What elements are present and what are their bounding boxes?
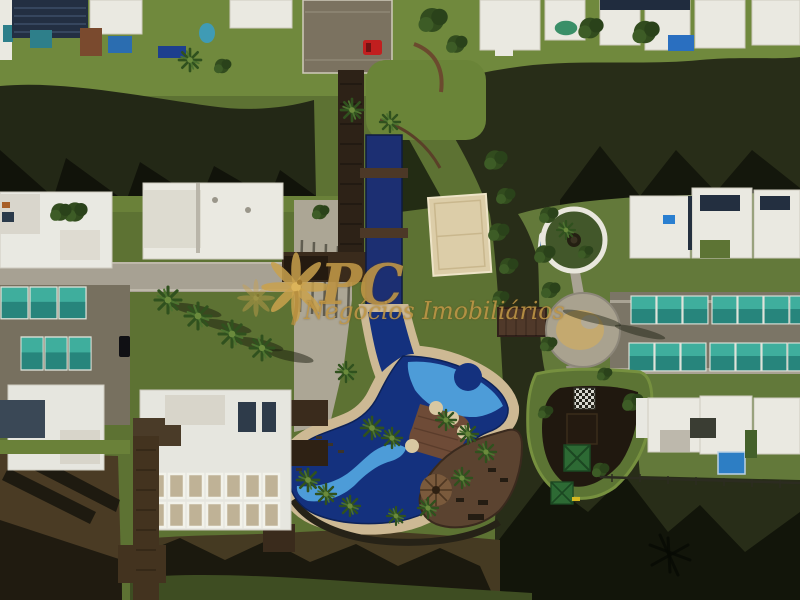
blue-pool <box>668 35 694 51</box>
play-cart <box>572 497 580 501</box>
mid-right-buildings <box>630 188 800 258</box>
lap-pool <box>360 135 408 312</box>
aerial-photo: PC Negócios Imobiliários <box>0 0 800 600</box>
house-pool-4 <box>199 23 215 43</box>
bottom-canal-left <box>0 452 122 600</box>
black-car <box>119 336 130 357</box>
canal-bridge-right <box>498 308 546 336</box>
circular-plaza <box>546 293 620 367</box>
beach-volleyball-court <box>428 194 491 276</box>
wood-patio <box>80 28 102 56</box>
house-pool-1 <box>30 30 52 48</box>
house-pool-2 <box>108 36 132 53</box>
green-pool <box>554 20 578 36</box>
red-car <box>363 40 382 55</box>
play-tower <box>567 414 597 444</box>
rooftop-pool <box>663 215 675 224</box>
plunge-pool <box>3 25 13 42</box>
giant-chessboard <box>574 388 595 409</box>
pergola-1 <box>286 400 328 426</box>
house-pool-blue <box>718 452 745 474</box>
aerial-photo-canvas <box>0 0 800 600</box>
pergola-2 <box>288 440 328 466</box>
